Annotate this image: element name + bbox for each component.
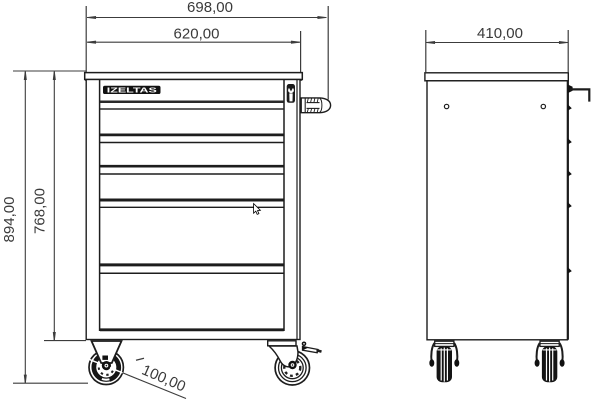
svg-text:698,00: 698,00 xyxy=(187,0,233,16)
svg-text:410,00: 410,00 xyxy=(477,25,523,42)
svg-text:IZELTAS: IZELTAS xyxy=(107,85,157,94)
svg-text:894,00: 894,00 xyxy=(1,197,18,243)
svg-text:768,00: 768,00 xyxy=(32,188,49,234)
svg-text:620,00: 620,00 xyxy=(174,25,220,42)
